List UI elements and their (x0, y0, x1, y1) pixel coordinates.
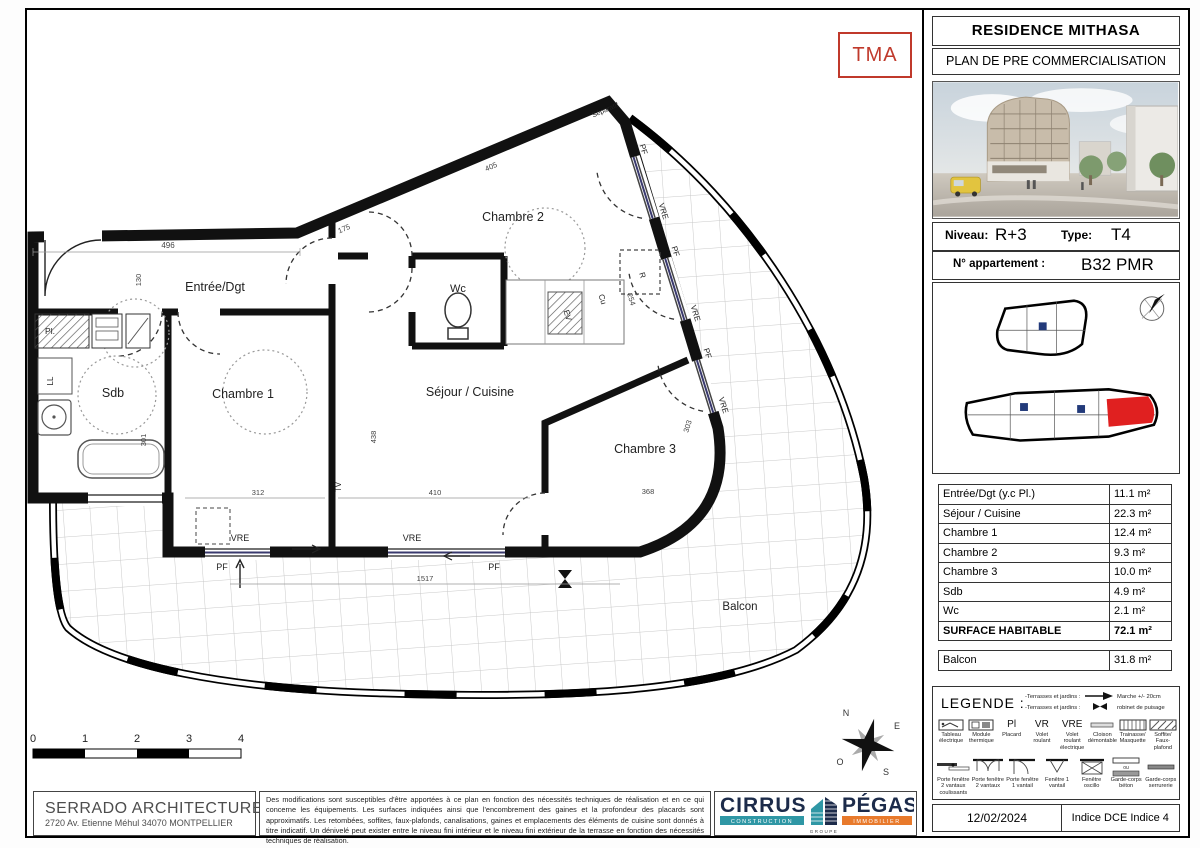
architect-block: SERRADO ARCHITECTURE 2720 Av. Etienne Mé… (33, 791, 256, 836)
legend-item: ou Garde-corps béton (1109, 757, 1144, 796)
svg-text:4: 4 (238, 733, 244, 745)
table-row: Wc 2.1 m² (938, 602, 1172, 622)
vre-symbol: VRE (1057, 717, 1087, 732)
type-label: Type: (1061, 228, 1092, 242)
title-block: RESIDENCE MITHASA PLAN DE PRE COMMERCIAL… (922, 10, 1188, 832)
legend-title: LEGENDE : (941, 695, 1025, 711)
svg-text:VRE: VRE (403, 533, 422, 543)
svg-text:301: 301 (139, 434, 148, 447)
electrical-panel-icon (936, 717, 966, 732)
apartment-value: B32 PMR (1081, 255, 1154, 275)
washing-machine (38, 358, 72, 394)
room-label-sdb: Sdb (102, 386, 124, 400)
svg-text:VRE: VRE (231, 533, 250, 543)
cirrus-wordmark: CIRRUS (720, 794, 807, 817)
project-title: RESIDENCE MITHASA (932, 16, 1180, 46)
sliding-door-icon (936, 757, 971, 777)
legend-item: Fenêtre oscillo (1074, 757, 1109, 796)
svg-text:TV: TV (334, 481, 343, 492)
svg-text:ou: ou (1123, 765, 1129, 771)
thermal-module-icon (966, 717, 996, 732)
indice-cell: Indice DCE Indice 4 (1061, 804, 1181, 832)
window-1-icon (1040, 757, 1075, 777)
plan-subtitle: PLAN DE PRE COMMERCIALISATION (932, 48, 1180, 75)
legend-item: Garde-corps serrurerie (1143, 757, 1178, 796)
architect-address: 2720 Av. Etienne Méhul 34070 MONTPELLIER (45, 818, 263, 828)
vr-symbol: VR (1027, 717, 1057, 732)
table-row-balcony: Balcon 31.8 m² (938, 650, 1172, 671)
date-cell: 12/02/2024 (932, 804, 1062, 832)
legend-item: Porte fenêtre 1 vantail (1005, 757, 1040, 796)
toilet (445, 293, 471, 327)
soffit-icon (1148, 717, 1178, 732)
cirrus-pegase-logo: CIRRUS CONSTRUCTION GROUPE PÉGASE IMMOBI… (718, 793, 914, 835)
pegase-wordmark: PÉGASE (842, 794, 914, 817)
svg-text:130: 130 (134, 274, 143, 287)
svg-text:438: 438 (369, 431, 378, 444)
level-type-row: Niveau: R+3 Type: T4 (932, 222, 1180, 251)
apartment-row: N° appartement : B32 PMR (932, 251, 1180, 280)
legend-row2: Porte fenêtre 2 vantaux coulissants Port… (936, 757, 1178, 796)
svg-text:368: 368 (642, 487, 655, 496)
room-label-chambre3: Chambre 3 (614, 442, 676, 456)
duct-icon (1118, 717, 1148, 732)
svg-text:410: 410 (429, 488, 442, 497)
key-plans (932, 282, 1180, 474)
groupe-building-icon (811, 797, 837, 825)
render-illustration (933, 82, 1178, 217)
table-row: Chambre 2 9.3 m² (938, 544, 1172, 564)
partition-icon (1087, 717, 1117, 732)
svg-text:E: E (894, 721, 900, 731)
key-plan-illustration (933, 283, 1178, 472)
legend-item: VR Volet roulant (1027, 717, 1057, 751)
legend: LEGENDE : -Terrasses et jardins : Marche… (932, 686, 1180, 800)
svg-text:3: 3 (186, 733, 192, 745)
step-arrow-icon (1083, 692, 1117, 702)
svg-text:N: N (843, 708, 850, 718)
developer-logos: CIRRUS CONSTRUCTION GROUPE PÉGASE IMMOBI… (714, 791, 917, 836)
legend-item: Fenêtre 1 vantail (1040, 757, 1075, 796)
closet-pl (35, 314, 89, 348)
legend-item: Cloison démontable (1087, 717, 1117, 751)
legend-item: Tableau électrique (936, 717, 966, 751)
cirrus-sub: CONSTRUCTION (730, 819, 792, 825)
pegase-sub: IMMOBILIER (853, 819, 900, 825)
svg-text:O: O (836, 757, 843, 767)
table-row: Séjour / Cuisine 22.3 m² (938, 505, 1172, 525)
svg-text:1517: 1517 (417, 574, 434, 583)
legend-item: Porte fenêtre 2 vantaux (971, 757, 1006, 796)
tilt-window-icon (1074, 757, 1109, 777)
french-door-1-icon (1005, 757, 1040, 777)
table-row: Sdb 4.9 m² (938, 583, 1172, 603)
tma-label: TMA (852, 44, 897, 67)
table-row-total: SURFACE HABITABLE 72.1 m² (938, 622, 1172, 642)
legend-item: Porte fenêtre 2 vantaux coulissants (936, 757, 971, 796)
svg-text:496: 496 (161, 241, 175, 250)
legend-item: Pl Placard (997, 717, 1027, 751)
svg-text:2: 2 (134, 733, 140, 745)
architect-name: SERRADO ARCHITECTURE (45, 800, 263, 818)
niveau-label: Niveau: (945, 228, 988, 242)
room-label-balcon: Balcon (722, 601, 757, 613)
building-render (932, 81, 1180, 219)
room-label-sejour: Séjour / Cuisine (426, 385, 514, 399)
concrete-railing-icon: ou (1109, 757, 1144, 777)
legend-item: Module thermique (966, 717, 996, 751)
key-compass-icon (1140, 294, 1165, 321)
legend-row1: Tableau électrique Module thermique Pl P… (936, 717, 1178, 751)
svg-text:LL: LL (46, 376, 55, 385)
svg-text:0: 0 (30, 733, 36, 745)
bathtub (78, 440, 164, 478)
room-label-entree: Entrée/Dgt (185, 280, 245, 294)
groupe-label: GROUPE (809, 829, 838, 834)
svg-text:312: 312 (252, 488, 265, 497)
disclaimer: Des modifications sont susceptibles d'êt… (259, 791, 711, 836)
key-plan-upper (997, 301, 1086, 355)
plan-sheet: Entrée/Dgt Chambre 2 Wc Sdb Chambre 1 Sé… (25, 8, 1190, 838)
tma-stamp: TMA (838, 32, 912, 78)
legend-item: Soffite/ Faux-plafond (1148, 717, 1178, 751)
svg-text:S: S (883, 767, 889, 777)
table-row: Chambre 1 12.4 m² (938, 524, 1172, 544)
niveau-value: R+3 (995, 225, 1027, 245)
svg-text:PF: PF (216, 562, 228, 572)
legend-item: VRE Volet roulant électrique (1057, 717, 1087, 751)
type-value: T4 (1111, 225, 1131, 245)
table-row: Entrée/Dgt (y.c Pl.) 11.1 m² (938, 484, 1172, 505)
apartment-label: N° appartement : (953, 258, 1045, 270)
surface-table: Entrée/Dgt (y.c Pl.) 11.1 m² Séjour / Cu… (938, 484, 1172, 671)
svg-text:Pl.: Pl. (45, 326, 55, 336)
legend-top-items: -Terrasses et jardins : Marche +/- 20cm … (1025, 691, 1179, 713)
legend-item: Trainasse/ Masquette (1118, 717, 1148, 751)
scale-bar: 0 1 2 3 4 (30, 733, 244, 758)
floor-plan: Entrée/Dgt Chambre 2 Wc Sdb Chambre 1 Sé… (27, 10, 920, 832)
key-plan-lower (966, 389, 1157, 440)
french-door-2-icon (971, 757, 1006, 777)
room-label-chambre2: Chambre 2 (482, 210, 544, 224)
compass-icon: N E S O (815, 692, 920, 797)
room-label-wc: Wc (450, 283, 466, 295)
highlighted-apartment (1107, 396, 1154, 427)
table-row: Chambre 3 10.0 m² (938, 563, 1172, 583)
tap-icon (1083, 702, 1117, 713)
metal-railing-icon (1143, 757, 1178, 777)
svg-text:1: 1 (82, 733, 88, 745)
placard-symbol: Pl (997, 717, 1027, 732)
room-label-chambre1: Chambre 1 (212, 387, 274, 401)
svg-text:PF: PF (488, 562, 500, 572)
